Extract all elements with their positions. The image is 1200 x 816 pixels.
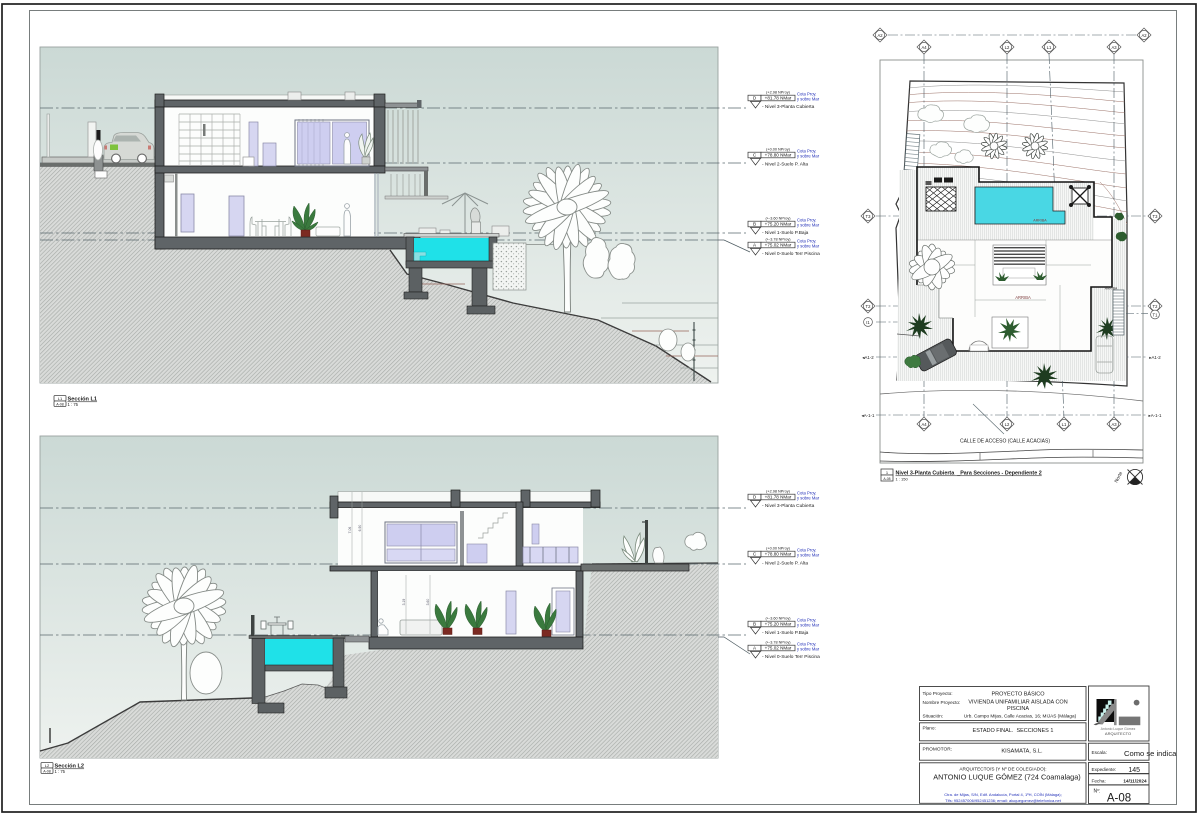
svg-text:L1: L1: [1047, 45, 1052, 50]
svg-text:Urb. Campo Mijas, Calle Acacia: Urb. Campo Mijas, Calle Acacias, 16; MIJ…: [964, 714, 1077, 719]
svg-text:A-08: A-08: [883, 477, 890, 481]
svg-text:A4: A4: [921, 422, 927, 427]
svg-text:T3: T3: [866, 214, 872, 219]
svg-text:- Nivel 0-Suelo Terr Piscina: - Nivel 0-Suelo Terr Piscina: [762, 654, 820, 660]
svg-text:ARQUITECTO/S (Y Nº DE COLEGIAD: ARQUITECTO/S (Y Nº DE COLEGIADO):: [959, 766, 1046, 771]
svg-text:y sobre Mar: y sobre Mar: [797, 647, 820, 652]
svg-text:+75.02 NMar: +75.02 NMar: [765, 646, 792, 651]
svg-text:▸A1-2: ▸A1-2: [1149, 355, 1161, 360]
svg-text:- Nivel 0-Suelo Terr Piscina: - Nivel 0-Suelo Terr Piscina: [762, 251, 820, 257]
svg-text:PISCINA: PISCINA: [1007, 706, 1029, 712]
svg-text:y sobre Mar: y sobre Mar: [797, 154, 820, 159]
svg-text:+75.20 NMar: +75.20 NMar: [765, 222, 792, 227]
svg-text:6.90: 6.90: [358, 525, 362, 532]
svg-text:+81.78 NMar: +81.78 NMar: [765, 96, 792, 101]
svg-text:- Nivel 3-Planta Cubierta: - Nivel 3-Planta Cubierta: [762, 104, 815, 110]
svg-text:Escala:: Escala:: [1092, 750, 1107, 755]
svg-text:Plano:: Plano:: [923, 726, 936, 731]
svg-text:B: B: [753, 222, 756, 227]
svg-text:◂A-1-1: ◂A-1-1: [862, 413, 875, 418]
svg-text:(+2.98 NProy): (+2.98 NProy): [766, 90, 790, 94]
svg-text:3.19: 3.19: [402, 599, 406, 606]
svg-text:ARRIBA: ARRIBA: [1033, 219, 1047, 223]
svg-text:L1: L1: [58, 396, 63, 401]
svg-text:- Nivel 1-Suelo P.Baja: - Nivel 1-Suelo P.Baja: [762, 630, 809, 636]
svg-text:+78.80 NMar: +78.80 NMar: [765, 552, 792, 557]
svg-text:A3: A3: [1111, 45, 1117, 50]
svg-text:T2: T2: [1153, 304, 1159, 309]
svg-text:Nº:: Nº:: [1094, 789, 1101, 795]
svg-text:ESTADO FINAL. SECCIONES 1: ESTADO FINAL. SECCIONES 1: [973, 728, 1054, 734]
svg-text:(+0.00 NProy): (+0.00 NProy): [766, 546, 790, 550]
svg-text:Nombre Proyecto:: Nombre Proyecto:: [923, 700, 961, 705]
svg-text:(+2.98 NProy): (+2.98 NProy): [766, 489, 790, 493]
svg-text:y sobre Mar: y sobre Mar: [797, 553, 820, 558]
svg-text:Expediente:: Expediente:: [1092, 767, 1117, 772]
svg-text:Tlfs: 952457006/952451236; ema: Tlfs: 952457006/952451236; email: aluque…: [945, 798, 1062, 803]
svg-text:L2: L2: [1005, 422, 1010, 427]
svg-text:T2: T2: [866, 304, 872, 309]
svg-text:ARQUITECTO: ARQUITECTO: [1105, 731, 1131, 736]
svg-text:KISAMATA, S.L.: KISAMATA, S.L.: [1001, 748, 1043, 754]
svg-text:L2: L2: [45, 763, 50, 768]
svg-text:- Nivel 1-Suelo P.Baja: - Nivel 1-Suelo P.Baja: [762, 230, 809, 236]
svg-text:A2: A2: [1141, 33, 1147, 38]
svg-text:B: B: [753, 622, 756, 627]
svg-text:(+0.00 NProy): (+0.00 NProy): [766, 147, 790, 151]
svg-text:y sobre Mar: y sobre Mar: [797, 244, 820, 249]
svg-text:A4: A4: [921, 45, 927, 50]
svg-text:1 : 75: 1 : 75: [68, 402, 79, 407]
svg-text:ARRIBA: ARRIBA: [1105, 287, 1118, 291]
svg-text:+81.78 NMar: +81.78 NMar: [765, 495, 792, 500]
svg-text:CALLE DE ACCESO (CALLE ACACIAS: CALLE DE ACCESO (CALLE ACACIAS): [960, 439, 1050, 445]
svg-text:ANTONIO LUQUE GÓMEZ (724 Coama: ANTONIO LUQUE GÓMEZ (724 Coamalaga): [933, 772, 1080, 781]
svg-text:(+-3.78 NProy): (+-3.78 NProy): [765, 640, 791, 644]
svg-text:(+-3.60 NProy): (+-3.60 NProy): [765, 216, 791, 220]
svg-text:Tipo Proyecto:: Tipo Proyecto:: [923, 691, 953, 696]
svg-text:Ctra. de Mijas, S/N, Edif. And: Ctra. de Mijas, S/N, Edif. Andalucía, Po…: [944, 792, 1062, 797]
svg-text:L1: L1: [1062, 422, 1067, 427]
svg-text:+78.80 NMar: +78.80 NMar: [765, 153, 792, 158]
svg-text:L2: L2: [1005, 45, 1010, 50]
svg-text:PROMOTOR:: PROMOTOR:: [923, 747, 953, 753]
svg-text:◂A1-2: ◂A1-2: [862, 355, 874, 360]
svg-text:- Nivel 3-Planta Cubierta: - Nivel 3-Planta Cubierta: [762, 503, 815, 509]
svg-text:A-08: A-08: [1107, 793, 1131, 805]
svg-text:T1: T1: [1153, 312, 1159, 317]
svg-text:(+-3.78 NProy): (+-3.78 NProy): [765, 237, 791, 241]
svg-text:1 : 75: 1 : 75: [55, 769, 66, 774]
svg-text:Como se indica: Como se indica: [1124, 749, 1177, 758]
svg-text:y sobre Mar: y sobre Mar: [797, 623, 820, 628]
svg-text:ARRIBA: ARRIBA: [1015, 295, 1031, 300]
svg-text:▸A-1-1: ▸A-1-1: [1149, 413, 1162, 418]
svg-text:VIVIENDA UNIFAMILIAR AISLADA C: VIVIENDA UNIFAMILIAR AISLADA CON: [968, 700, 1067, 706]
svg-text:A-08: A-08: [43, 770, 51, 774]
svg-text:A2: A2: [877, 33, 883, 38]
svg-text:+75.02 NMar: +75.02 NMar: [765, 243, 792, 248]
svg-text:T3: T3: [1153, 214, 1159, 219]
svg-text:Fecha:: Fecha:: [1092, 778, 1106, 783]
svg-text:(+-3.60 NProy): (+-3.60 NProy): [765, 616, 791, 620]
svg-text:Nivel 3-Planta Cubierta _Para: Nivel 3-Planta Cubierta _Para Secciones …: [896, 471, 1042, 477]
svg-text:A3: A3: [1111, 422, 1117, 427]
svg-text:y sobre Mar: y sobre Mar: [797, 97, 820, 102]
svg-text:3.60: 3.60: [426, 599, 430, 606]
svg-text:14/11/2024: 14/11/2024: [1123, 778, 1147, 783]
svg-text:y sobre Mar: y sobre Mar: [797, 223, 820, 228]
svg-text:7.06: 7.06: [348, 527, 352, 534]
svg-text:1 : 150: 1 : 150: [896, 477, 909, 482]
svg-text:y sobre Mar: y sobre Mar: [797, 496, 820, 501]
svg-text:PROYECTO BÁSICO: PROYECTO BÁSICO: [991, 690, 1045, 697]
svg-text:- Nivel 2-Suelo P. Alta: - Nivel 2-Suelo P. Alta: [762, 561, 808, 567]
svg-text:+75.20 NMar: +75.20 NMar: [765, 622, 792, 627]
svg-text:145: 145: [1128, 767, 1140, 774]
svg-text:Situación:: Situación:: [923, 714, 944, 719]
svg-text:- Nivel 2-Suelo P. Alta: - Nivel 2-Suelo P. Alta: [762, 162, 808, 168]
svg-text:A-08: A-08: [56, 403, 64, 407]
